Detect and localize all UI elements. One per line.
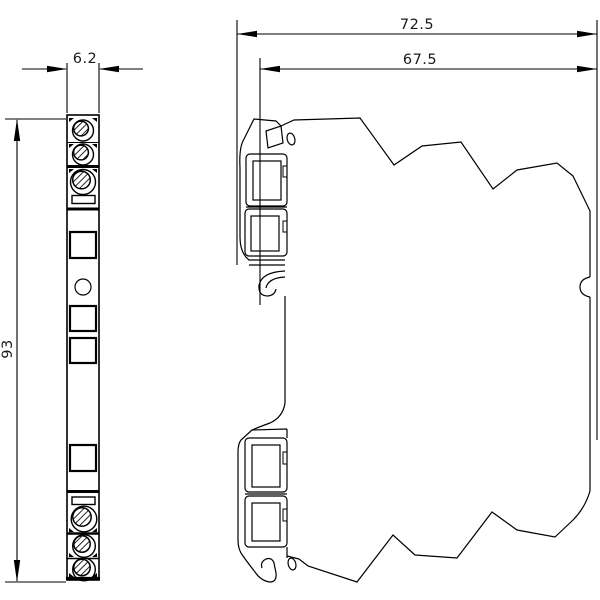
connector-window-3 [70,338,96,363]
dimension-label-depth-body: 67.5 [403,52,437,68]
lower-housing-pin [287,557,297,571]
upper-housing-pin [286,132,296,146]
arrowhead-right-icon [577,31,597,37]
terminal-opening-bottom-2-inner [252,503,280,541]
dimension-drawing: 6.2 93 72.5 67.5 [0,0,600,600]
arrowhead-left-icon [99,66,119,72]
arrowhead-right-icon [47,66,67,72]
dimension-front-height: 93 [0,119,66,582]
dimension-depth-total: 72.5 [237,17,597,440]
dimension-label-front-height: 93 [0,339,16,358]
arrowhead-down-icon [14,560,20,582]
din-clip-hook-upper [259,271,285,296]
screw-terminal-bottom-1 [71,506,97,532]
arrowhead-left-icon [237,31,257,37]
upper-housing-vent [266,126,283,148]
dimension-label-front-width: 6.2 [73,51,98,67]
label-window-bottom [72,497,95,505]
arrowhead-left-icon [260,66,280,72]
drawing-canvas: 6.2 93 72.5 67.5 [0,0,600,600]
front-view [66,115,100,581]
terminal-opening-top-1-inner [253,161,281,200]
led-indicator [75,279,91,295]
terminal-opening-bottom-1 [245,438,287,492]
terminal-opening-bottom-2 [245,496,287,547]
screw-terminal-top-2 [73,144,94,165]
connector-window-4 [70,445,96,471]
terminal-opening-bottom-1-inner [252,445,280,487]
terminal-opening-top-2-inner [251,216,279,251]
dimension-label-depth-total: 72.5 [400,17,434,33]
label-window-top [72,196,95,204]
right-edge-notch [580,277,590,297]
din-clip-hook-lower [252,403,285,430]
dimension-front-width: 6.2 [22,51,143,113]
housing-top-contour [281,118,590,277]
din-clip-hook-upper-inner [266,277,285,288]
screw-terminal-bottom-2 [73,535,96,558]
connector-window-1 [70,232,96,258]
screw-terminal-top-1 [73,120,94,141]
screw-terminal-top-3 [71,170,96,195]
arrowhead-right-icon [577,66,597,72]
side-view [238,118,590,582]
connector-window-2 [70,306,96,331]
dimension-depth-body: 67.5 [260,52,597,305]
arrowhead-up-icon [14,119,20,141]
housing-bottom-contour [299,491,590,582]
